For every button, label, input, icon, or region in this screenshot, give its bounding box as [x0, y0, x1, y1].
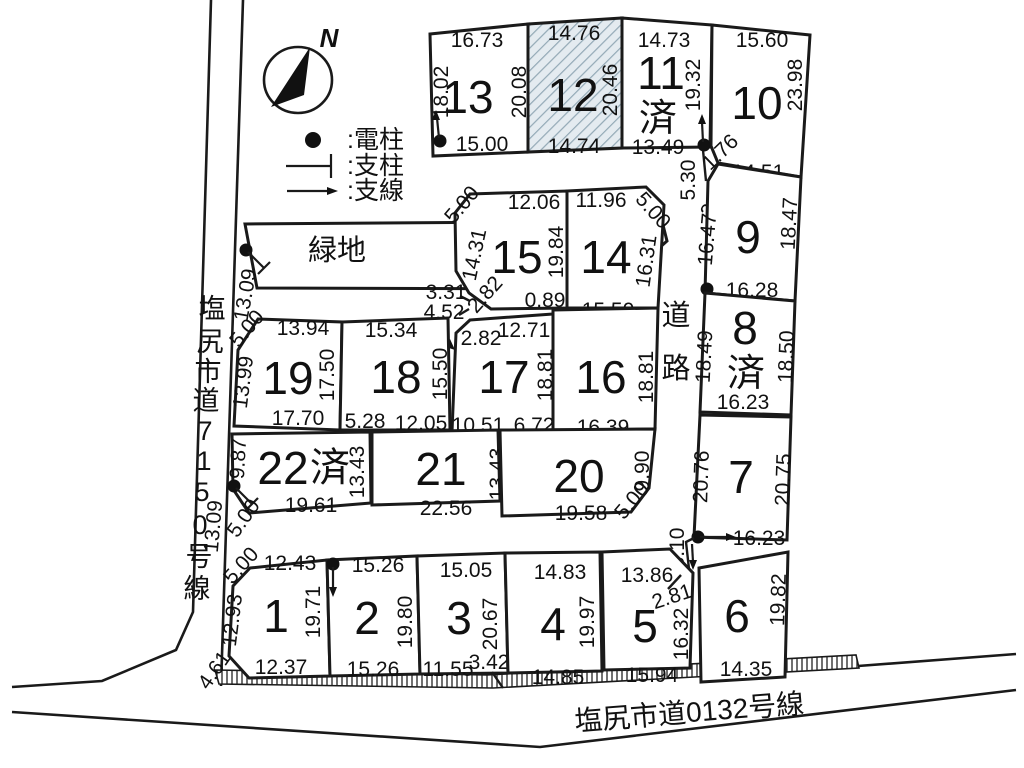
lot-3: 3 15.05 20.67 11.55 3.42 [417, 553, 509, 688]
left-road-char-8: 号 [186, 542, 213, 572]
lot-9: 9 16.47 18.47 16.28 [694, 164, 803, 302]
lot-5-dim-top: 13.86 [621, 564, 674, 587]
lot-18-dim-top: 15.34 [365, 319, 418, 342]
lot-15-dim-top: 12.06 [508, 191, 561, 214]
lot-17-dim-topleft-diag: 2.82 [461, 327, 502, 350]
plot-map-svg: 緑地 13 16.73 18.02 20.08 15.00 12 14.76 2… [0, 0, 1024, 768]
lot-10-dim-right: 23.98 [784, 59, 807, 112]
lot-8-number: 8 [732, 302, 758, 354]
legend-pole-icon [305, 132, 321, 148]
lot-15-number: 15 [491, 231, 542, 283]
lot-6-dim-bottom: 14.35 [720, 658, 773, 681]
north-label: N [320, 23, 340, 53]
lot-4-dim-top: 14.83 [534, 561, 587, 584]
lot-10-number: 10 [731, 77, 782, 129]
lot-12-dim-top: 14.76 [548, 22, 601, 45]
lot-22-dim-left: 9.87 [226, 438, 251, 480]
left-road-name: 塩 尻 市 道 7 1 5 0 号 線 [184, 294, 226, 604]
lot-22: 22 済 9.87 13.43 19.61 5.00 [223, 432, 371, 542]
lot-13: 13 16.73 18.02 20.08 15.00 [430, 24, 531, 156]
left-road-char-3: 道 [193, 386, 220, 416]
lot-11-number: 11 [637, 47, 685, 99]
lot-6-dim-right: 19.82 [766, 573, 791, 626]
lot-3-number: 3 [446, 592, 472, 644]
lot-7-dim-bottom: 16.23 [733, 527, 786, 550]
compass-needle [271, 47, 310, 107]
lot-1-dim-bottom: 12.37 [255, 656, 308, 679]
inner-road-char-1: 道 [661, 299, 690, 332]
lot-2-dim-bottom: 15.26 [347, 658, 400, 681]
lot-12-dim-right: 20.46 [599, 64, 622, 117]
lot-21-dim-bottom: 22.56 [420, 497, 473, 520]
lot-2-number: 2 [354, 592, 380, 644]
left-road-char-0: 塩 [199, 294, 226, 324]
lot-8-dim-left: 18.49 [692, 330, 718, 384]
lot-19-dim-top: 13.94 [277, 317, 330, 340]
left-road-char-7: 0 [192, 510, 207, 540]
lot-8-status: 済 [727, 353, 765, 395]
map-legend: :電柱 :支柱 :支線 [286, 126, 404, 205]
lot-5: 5 13.86 2.81 16.32 15.94 [602, 549, 695, 687]
lot-14: 14 11.96 5.00 16.31 15.50 [567, 187, 675, 322]
legend-wire-label: :支線 [347, 177, 404, 205]
left-road-char-2: 市 [195, 357, 222, 387]
lot-20: 20 9.90 5.00 19.58 [500, 429, 655, 525]
lot-7: 7 20.76 20.75 16.23 [689, 415, 796, 550]
lot-20-dim-bottom: 19.58 [555, 502, 608, 525]
lot-22-status: 済 [310, 446, 350, 490]
lot-3-dim-top: 15.05 [440, 559, 493, 582]
plot-map: 緑地 13 16.73 18.02 20.08 15.00 12 14.76 2… [0, 0, 1024, 768]
lot-1-number: 1 [263, 590, 289, 642]
lot-18-number: 18 [370, 351, 421, 403]
legend-post-icon [286, 154, 331, 178]
lot-2-dim-top: 15.26 [352, 554, 405, 577]
legend-pole-label: :電柱 [347, 126, 404, 154]
lot-1-dim-top: 12.43 [264, 552, 317, 575]
lot-4-dim-bottom: 14.85 [532, 666, 585, 689]
left-road-char-6: 5 [194, 477, 209, 507]
lot-1-dim-right: 19.71 [302, 586, 325, 639]
lot-13-dim-left: 18.02 [430, 66, 453, 119]
lot-22-dim-bottom: 19.61 [285, 494, 338, 517]
lot-1: 1 5.00 12.43 12.93 19.71 12.37 4.61 [194, 543, 330, 694]
lot-19-dim-right: 17.50 [316, 349, 339, 402]
segment-5-30: 5.30 [677, 160, 700, 201]
lot-20-number: 20 [553, 450, 604, 502]
lot-17: 17 12.71 2.82 18.81 10.51 6.72 [452, 314, 557, 437]
lot-12-dim-bottom: 14.74 [548, 135, 601, 158]
lot-7-number: 7 [728, 451, 754, 503]
lot-7-dim-right: 20.75 [771, 453, 796, 506]
lot-9-dim-left: 16.47 [694, 212, 721, 266]
lot-2: 2 15.26 19.80 15.26 [327, 554, 421, 681]
lot-15-dim-right: 19.84 [545, 225, 568, 278]
lot-14-dim-top: 11.96 [576, 189, 627, 212]
left-road-char-1: 尻 [197, 327, 224, 357]
lot-14-number: 14 [580, 231, 631, 283]
lot-11-dim-right: 19.32 [682, 59, 705, 112]
lot-13-dim-bottom: 15.00 [456, 133, 509, 156]
lot-16-number: 16 [575, 351, 626, 403]
left-road-char-9: 線 [184, 574, 211, 604]
guy-wire-down-road-jog [689, 544, 697, 570]
lot-11-dim-bottom: 13.49 [632, 136, 685, 159]
lot-11-dim-top: 14.73 [638, 29, 691, 52]
inner-road-label: 道 路 [661, 299, 690, 385]
lot-19-dim-bottom: 17.70 [272, 407, 325, 430]
lot-18-dim-right: 15.50 [429, 348, 452, 401]
lot-2-dim-right: 19.80 [394, 596, 417, 649]
lot-9-number: 9 [735, 211, 761, 263]
lot-22-number: 22 [257, 442, 308, 494]
lot-4-dim-right: 19.97 [576, 596, 599, 649]
lot-19-number: 19 [262, 352, 313, 404]
lot-13-dim-top: 16.73 [451, 29, 504, 52]
legend-wire-icon [287, 187, 338, 195]
lot-8-dim-right: 18.50 [774, 330, 799, 383]
lot-6-number: 6 [724, 590, 750, 642]
lot-12-number: 12 [547, 69, 598, 121]
lot-22-dim-right: 13.43 [346, 446, 369, 499]
lot-21-number: 21 [415, 443, 466, 495]
lot-6: 6 19.82 14.35 [699, 552, 791, 682]
utility-pole-dot-lot13 [434, 135, 447, 148]
compass: N [264, 23, 340, 113]
lot-8-dim-bottom: 16.23 [717, 391, 770, 414]
lot-17-dim-top: 12.71 [498, 319, 551, 342]
left-road-char-5: 1 [196, 446, 211, 476]
lot-9-dim-right: 18.47 [777, 197, 803, 251]
lot-18: 18 15.34 15.50 5.28 12.05 [340, 318, 452, 435]
lot-7-dim-left: 20.76 [689, 450, 714, 503]
lot-8: 8 済 18.49 18.50 16.23 [692, 293, 799, 415]
lot-16: 16 18.81 16.39 [553, 308, 658, 439]
inner-road-char-2: 路 [661, 352, 690, 385]
lot-5-dim-bottom: 15.94 [626, 664, 679, 687]
lot-4: 4 14.83 19.97 14.85 [505, 552, 602, 689]
lot-16-dim-right: 18.81 [635, 351, 658, 404]
legend-post-label: :支柱 [347, 152, 404, 180]
lot-19: 19 5.00 13.94 13.99 17.50 17.70 [225, 306, 342, 430]
lot-4-number: 4 [540, 598, 566, 650]
lot-11: 11 済 14.73 19.32 13.49 [622, 18, 712, 159]
lot-10-dim-top: 15.60 [736, 29, 789, 52]
lot-11-status: 済 [639, 98, 677, 140]
lot-5-dim-right: 16.32 [670, 608, 693, 661]
lot-3-dim-bottom: 11.55 [423, 658, 474, 681]
lot-18-dim-bottomleft: 5.28 [345, 410, 386, 433]
lot-3-dim-right: 20.67 [479, 598, 502, 651]
lot-17-number: 17 [478, 351, 529, 403]
lot-12: 12 14.76 20.46 14.74 [528, 18, 622, 158]
lot-3-dim-bottomright: 3.42 [469, 651, 510, 674]
left-road-char-4: 7 [197, 416, 212, 446]
green-space-label: 緑地 [308, 234, 366, 267]
